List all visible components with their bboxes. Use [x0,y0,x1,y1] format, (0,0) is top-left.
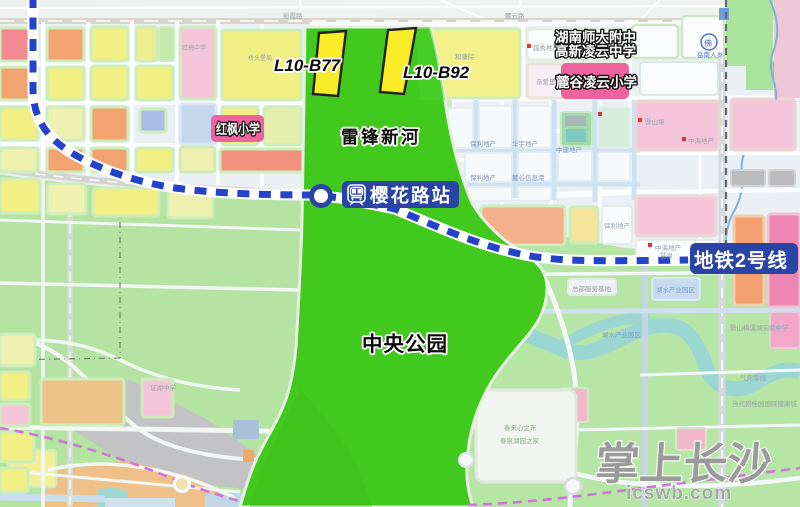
svg-text:保利地产: 保利地产 [470,139,497,148]
svg-text:亲爱里: 亲爱里 [536,77,556,86]
svg-text:L10-B92: L10-B92 [403,63,470,82]
svg-text:证湖中学: 证湖中学 [150,383,177,392]
svg-text:春来心之东: 春来心之东 [504,423,537,432]
svg-text:中海地产: 中海地产 [655,243,682,252]
svg-text:春泉湖园之家: 春泉湖园之家 [500,436,540,445]
svg-text:湖南师大附中: 湖南师大附中 [555,29,636,45]
svg-text:保利地产: 保利地产 [604,221,631,230]
svg-text:麓谷信息港: 麓谷信息港 [512,173,545,182]
svg-text:华宇地产: 华宇地产 [512,139,539,148]
svg-text:总部服务基地: 总部服务基地 [572,284,612,293]
svg-text:icswb.com: icswb.com [626,483,732,504]
svg-text:高新凌云中学: 高新凌云中学 [555,43,636,59]
svg-text:湖水产业园区: 湖水产业园区 [656,285,696,294]
svg-text:暨山境: 暨山境 [645,117,665,126]
svg-text:暨山梅溪湖实验中学: 暨山梅溪湖实验中学 [730,323,789,332]
svg-text:湖水产业园区: 湖水产业园区 [602,330,642,339]
svg-text:彩霞路: 彩霞路 [283,11,303,20]
svg-text:中央公园: 中央公园 [362,332,448,356]
svg-text:桥头堡局: 桥头堡局 [248,54,272,62]
svg-text:保利地产: 保利地产 [470,173,497,182]
svg-text:气死专线: 气死专线 [740,373,767,382]
svg-text:掌上长沙: 掌上长沙 [594,440,773,489]
svg-text:红枫小学: 红枫小学 [216,121,260,137]
svg-text:岳南人乡: 岳南人乡 [697,50,723,59]
svg-text:和康院: 和康院 [455,52,475,61]
svg-text:L10-B77: L10-B77 [274,56,342,75]
svg-text:麓云路: 麓云路 [505,11,525,20]
svg-text:麓谷凌云小学: 麓谷凌云小学 [556,74,637,90]
svg-text:越秀地产: 越秀地产 [533,43,560,52]
svg-text:雷锋新河: 雷锋新河 [341,127,421,147]
svg-text:中建地产: 中建地产 [556,145,583,154]
svg-text:地铁2号线: 地铁2号线 [694,249,788,272]
svg-text:佛: 佛 [704,38,712,48]
svg-text:当代碧桂园国际健康城: 当代碧桂园国际健康城 [732,399,798,408]
svg-text:樱花路站: 樱花路站 [370,185,452,206]
svg-text:慧泉: 慧泉 [660,251,674,260]
svg-text:红梅中学: 红梅中学 [182,44,206,52]
svg-text:中海地产: 中海地产 [688,136,715,145]
